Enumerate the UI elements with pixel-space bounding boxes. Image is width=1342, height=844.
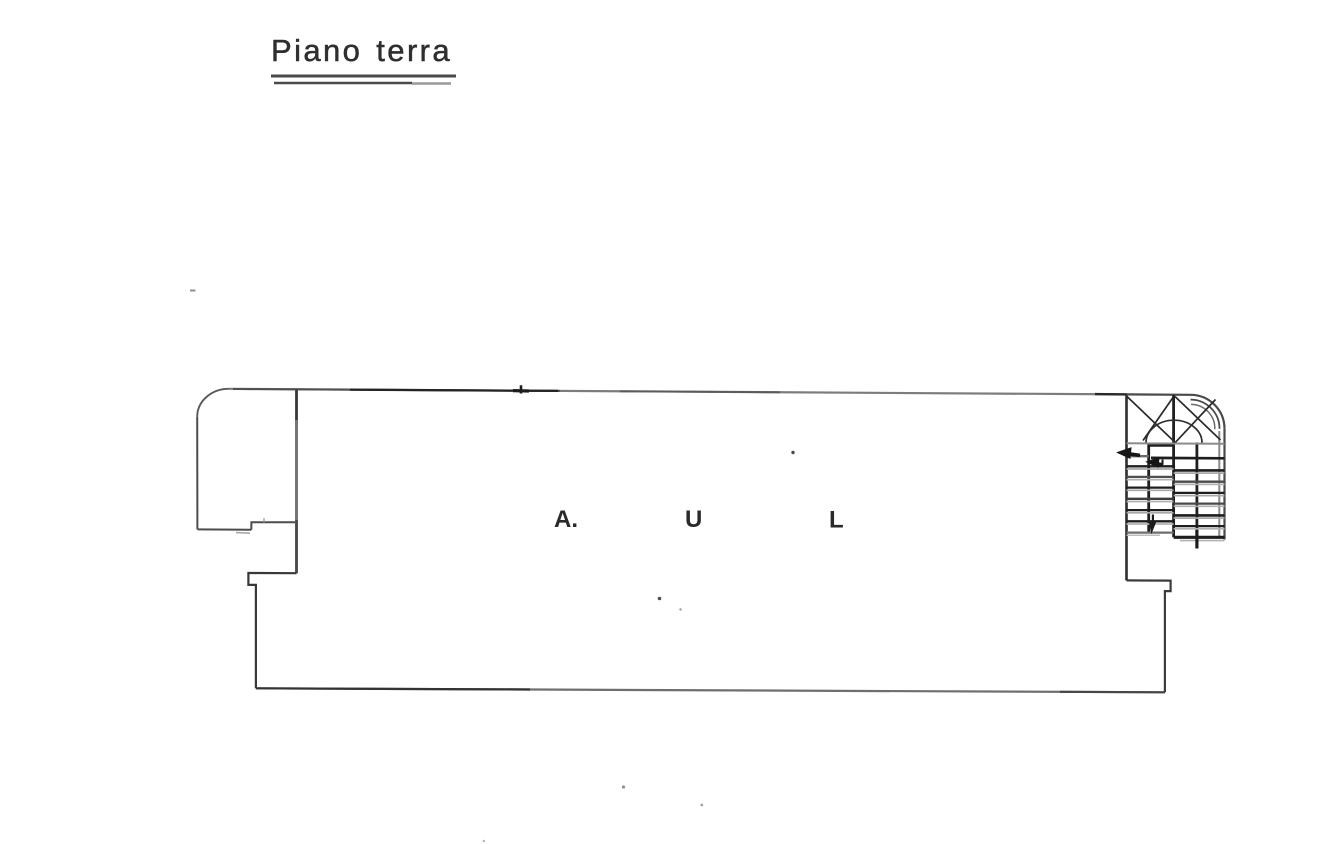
svg-text:A.: A.	[554, 506, 578, 533]
svg-text:L: L	[829, 507, 844, 534]
svg-text:U: U	[685, 506, 702, 533]
svg-text:Piano terra: Piano terra	[271, 33, 452, 68]
